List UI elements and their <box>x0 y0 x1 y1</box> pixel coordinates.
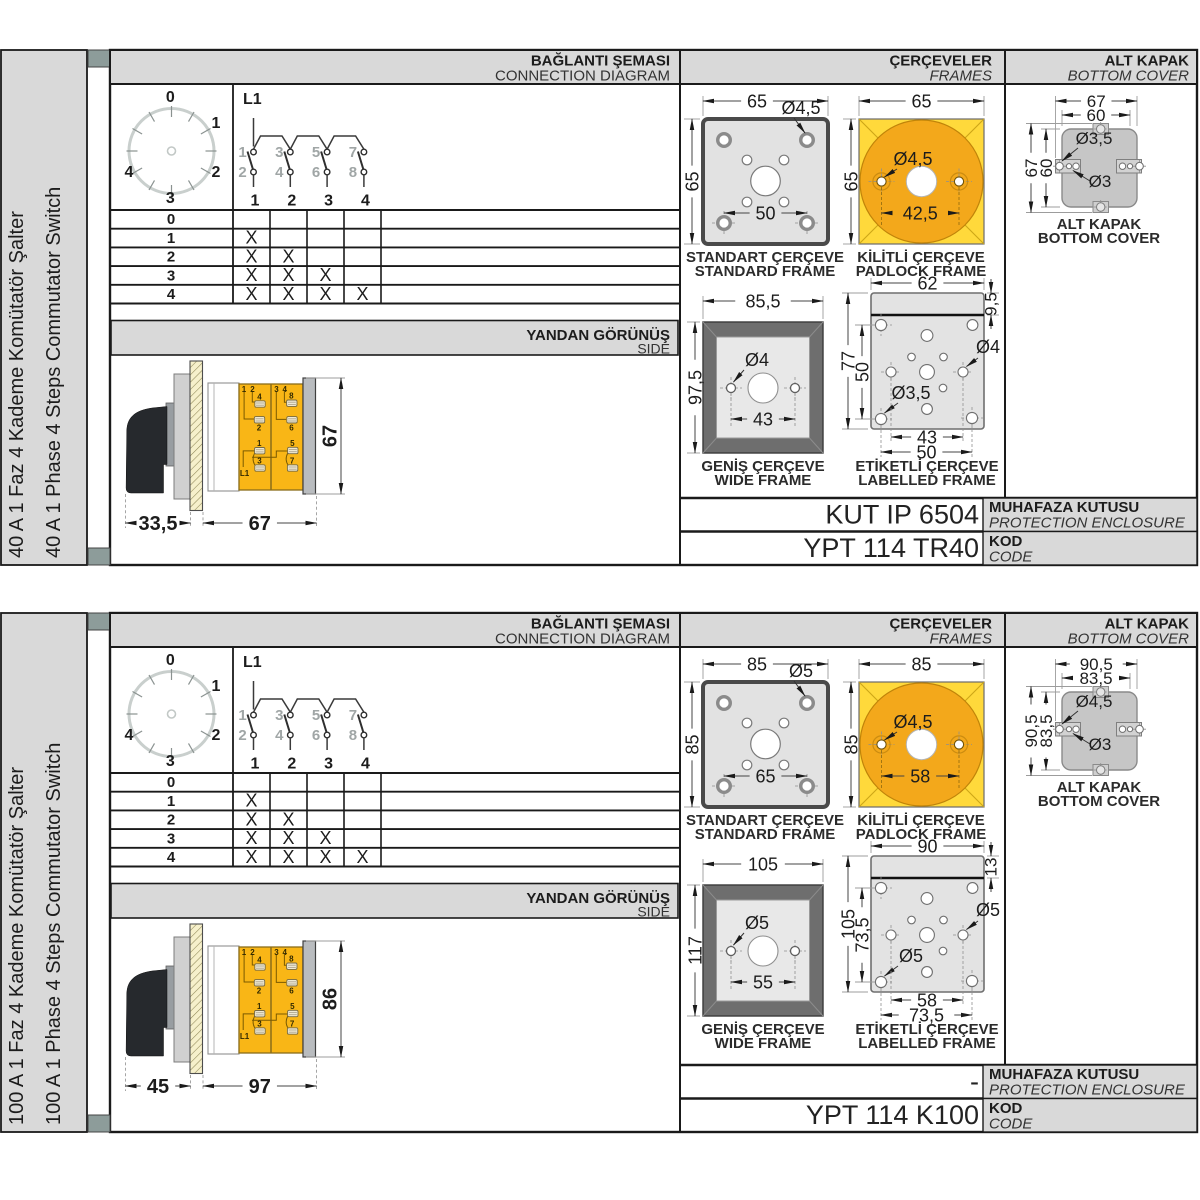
svg-text:L1: L1 <box>240 469 250 478</box>
svg-text:62: 62 <box>917 273 937 293</box>
svg-text:1: 1 <box>242 948 247 957</box>
svg-text:Ø3: Ø3 <box>1089 735 1112 754</box>
svg-text:2: 2 <box>257 986 262 995</box>
svg-text:4: 4 <box>257 956 262 965</box>
svg-text:8: 8 <box>349 164 357 181</box>
svg-text:SIDE: SIDE <box>637 904 670 920</box>
svg-text:67: 67 <box>320 425 342 447</box>
svg-text:1: 1 <box>212 678 221 695</box>
svg-text:Ø5: Ø5 <box>976 900 1000 920</box>
svg-text:X: X <box>245 847 257 867</box>
svg-text:KOD: KOD <box>989 1100 1023 1117</box>
svg-text:4: 4 <box>282 385 287 394</box>
svg-text:Ø4,5: Ø4,5 <box>1076 692 1113 711</box>
svg-text:45: 45 <box>147 1076 169 1098</box>
svg-text:1: 1 <box>238 144 246 161</box>
svg-text:X: X <box>282 246 294 266</box>
svg-text:CONNECTION DIAGRAM: CONNECTION DIAGRAM <box>495 631 670 648</box>
svg-text:X: X <box>282 809 294 829</box>
svg-text:BOTTOM COVER: BOTTOM COVER <box>1038 230 1160 247</box>
svg-text:LABELLED FRAME: LABELLED FRAME <box>858 472 996 489</box>
svg-text:1: 1 <box>257 1002 262 1011</box>
svg-text:5: 5 <box>312 707 320 724</box>
svg-text:85: 85 <box>682 734 702 754</box>
svg-text:65: 65 <box>841 171 861 191</box>
svg-text:X: X <box>356 847 368 867</box>
svg-text:Ø5: Ø5 <box>899 946 923 966</box>
svg-text:7: 7 <box>290 1020 295 1029</box>
svg-text:Ø4,5: Ø4,5 <box>781 98 820 118</box>
svg-text:Ø5: Ø5 <box>789 661 813 681</box>
svg-text:1: 1 <box>167 793 175 810</box>
svg-text:BOTTOM COVER: BOTTOM COVER <box>1068 68 1190 85</box>
svg-text:3: 3 <box>166 190 175 207</box>
svg-text:83,5: 83,5 <box>1079 669 1112 688</box>
svg-text:1: 1 <box>251 756 260 773</box>
svg-text:LABELLED FRAME: LABELLED FRAME <box>858 1035 996 1052</box>
svg-text:MUHAFAZA KUTUSU: MUHAFAZA KUTUSU <box>989 499 1139 516</box>
svg-text:65: 65 <box>755 766 775 786</box>
svg-text:X: X <box>245 228 257 248</box>
svg-text:42,5: 42,5 <box>903 203 938 223</box>
svg-text:0: 0 <box>166 89 175 106</box>
svg-text:X: X <box>319 847 331 867</box>
svg-text:3: 3 <box>275 707 283 724</box>
svg-text:X: X <box>319 828 331 848</box>
svg-text:7: 7 <box>349 144 357 161</box>
svg-text:X: X <box>245 246 257 266</box>
svg-text:Ø5: Ø5 <box>745 913 769 933</box>
svg-text:X: X <box>245 284 257 304</box>
svg-text:2: 2 <box>212 164 221 181</box>
svg-text:9,5: 9,5 <box>982 292 1001 316</box>
svg-text:2: 2 <box>257 423 262 432</box>
svg-text:Ø3: Ø3 <box>1089 172 1112 191</box>
svg-text:3: 3 <box>324 756 333 773</box>
svg-text:2: 2 <box>287 193 296 210</box>
svg-text:83,5: 83,5 <box>1037 714 1056 747</box>
svg-text:PROTECTION ENCLOSURE: PROTECTION ENCLOSURE <box>989 515 1186 532</box>
svg-text:6: 6 <box>289 986 294 995</box>
svg-text:117: 117 <box>685 936 705 965</box>
svg-text:YPT 114 TR40: YPT 114 TR40 <box>803 533 979 563</box>
svg-text:60: 60 <box>1037 159 1056 178</box>
svg-text:5: 5 <box>312 144 320 161</box>
svg-text:3: 3 <box>166 753 175 770</box>
svg-text:7: 7 <box>290 457 295 466</box>
svg-text:4: 4 <box>282 948 287 957</box>
svg-text:CODE: CODE <box>989 549 1033 566</box>
svg-text:Ø4: Ø4 <box>976 337 1000 357</box>
svg-text:CODE: CODE <box>989 1116 1033 1133</box>
svg-text:97: 97 <box>249 1076 271 1098</box>
svg-text:STANDARD FRAME: STANDARD FRAME <box>695 826 836 843</box>
svg-text:1: 1 <box>212 115 221 132</box>
svg-text:8: 8 <box>349 727 357 744</box>
svg-text:5: 5 <box>290 1002 295 1011</box>
svg-text:6: 6 <box>312 727 320 744</box>
svg-text:L1: L1 <box>240 1032 250 1041</box>
svg-text:X: X <box>245 265 257 285</box>
svg-text:Ø3,5: Ø3,5 <box>1076 129 1113 148</box>
svg-text:Ø4,5: Ø4,5 <box>893 149 932 169</box>
svg-text:33,5: 33,5 <box>139 513 178 535</box>
svg-text:3: 3 <box>167 830 175 847</box>
svg-text:WIDE FRAME: WIDE FRAME <box>715 1035 812 1052</box>
svg-text:X: X <box>282 265 294 285</box>
svg-text:Ø4,5: Ø4,5 <box>893 712 932 732</box>
svg-text:4: 4 <box>167 286 176 303</box>
svg-text:105: 105 <box>748 854 778 874</box>
svg-text:6: 6 <box>312 164 320 181</box>
svg-text:X: X <box>245 791 257 811</box>
svg-text:100 A 1 Faz 4 Kademe Komütatör: 100 A 1 Faz 4 Kademe Komütatör Şalter <box>6 767 28 1125</box>
svg-text:X: X <box>282 284 294 304</box>
svg-text:4: 4 <box>125 727 134 744</box>
svg-text:PROTECTION ENCLOSURE: PROTECTION ENCLOSURE <box>989 1082 1186 1099</box>
svg-text:X: X <box>245 828 257 848</box>
svg-text:X: X <box>319 265 331 285</box>
svg-text:73,5: 73,5 <box>852 917 872 952</box>
svg-text:58: 58 <box>910 766 930 786</box>
svg-text:0: 0 <box>167 774 175 791</box>
svg-text:YPT 114 K100: YPT 114 K100 <box>806 1100 979 1130</box>
svg-text:2: 2 <box>250 385 255 394</box>
svg-text:2: 2 <box>250 948 255 957</box>
svg-text:CONNECTION DIAGRAM: CONNECTION DIAGRAM <box>495 68 670 85</box>
svg-text:55: 55 <box>753 972 773 992</box>
svg-text:1: 1 <box>242 385 247 394</box>
svg-text:1: 1 <box>251 193 260 210</box>
svg-text:1: 1 <box>167 230 175 247</box>
svg-text:40 A 1 Faz 4 Kademe Komütatör: 40 A 1 Faz 4 Kademe Komütatör Şalter <box>6 211 28 558</box>
svg-text:85: 85 <box>747 654 767 674</box>
svg-text:8: 8 <box>289 955 294 964</box>
svg-text:0: 0 <box>167 211 175 228</box>
svg-text:3: 3 <box>167 267 175 284</box>
svg-text:40 A 1 Phase 4 Steps Commutato: 40 A 1 Phase 4 Steps Commutator Switch <box>43 187 65 558</box>
svg-text:85: 85 <box>911 654 931 674</box>
svg-text:13: 13 <box>982 858 1001 877</box>
svg-text:3: 3 <box>257 1020 262 1029</box>
svg-text:FRAMES: FRAMES <box>929 68 992 85</box>
svg-text:43: 43 <box>753 409 773 429</box>
svg-text:3: 3 <box>274 948 279 957</box>
svg-text:50: 50 <box>755 203 775 223</box>
svg-text:X: X <box>319 284 331 304</box>
svg-text:-: - <box>970 1067 979 1097</box>
svg-text:85,5: 85,5 <box>745 291 780 311</box>
svg-text:4: 4 <box>275 164 284 181</box>
svg-text:4: 4 <box>257 393 262 402</box>
svg-text:2: 2 <box>238 164 246 181</box>
svg-text:2: 2 <box>212 727 221 744</box>
svg-text:2: 2 <box>167 812 175 829</box>
svg-text:KOD: KOD <box>989 533 1023 550</box>
svg-text:100 A 1 Phase 4 Steps Commutat: 100 A 1 Phase 4 Steps Commutator Switch <box>43 743 65 1125</box>
svg-text:67: 67 <box>249 513 271 535</box>
svg-text:50: 50 <box>852 362 872 382</box>
svg-text:KUT IP 6504: KUT IP 6504 <box>825 500 979 530</box>
svg-text:L1: L1 <box>243 654 262 671</box>
svg-text:5: 5 <box>290 439 295 448</box>
svg-text:X: X <box>356 284 368 304</box>
svg-text:90: 90 <box>917 836 937 856</box>
svg-text:BOTTOM COVER: BOTTOM COVER <box>1068 631 1190 648</box>
svg-text:2: 2 <box>167 249 175 266</box>
svg-text:WIDE FRAME: WIDE FRAME <box>715 472 812 489</box>
svg-text:Ø3,5: Ø3,5 <box>891 383 930 403</box>
svg-text:97,5: 97,5 <box>685 370 705 405</box>
svg-text:65: 65 <box>911 91 931 111</box>
svg-text:1: 1 <box>257 439 262 448</box>
svg-text:6: 6 <box>289 423 294 432</box>
svg-text:7: 7 <box>349 707 357 724</box>
svg-text:4: 4 <box>361 756 370 773</box>
svg-text:4: 4 <box>275 727 284 744</box>
svg-text:MUHAFAZA KUTUSU: MUHAFAZA KUTUSU <box>989 1066 1139 1083</box>
svg-text:0: 0 <box>166 652 175 669</box>
svg-text:FRAMES: FRAMES <box>929 631 992 648</box>
svg-text:L1: L1 <box>243 91 262 108</box>
svg-text:X: X <box>282 828 294 848</box>
svg-text:STANDARD FRAME: STANDARD FRAME <box>695 263 836 280</box>
svg-text:85: 85 <box>841 734 861 754</box>
svg-text:3: 3 <box>257 457 262 466</box>
svg-text:4: 4 <box>361 193 370 210</box>
svg-text:X: X <box>245 809 257 829</box>
svg-text:8: 8 <box>289 392 294 401</box>
svg-text:3: 3 <box>324 193 333 210</box>
svg-text:1: 1 <box>238 707 246 724</box>
svg-text:65: 65 <box>682 171 702 191</box>
svg-text:X: X <box>282 847 294 867</box>
svg-text:4: 4 <box>125 164 134 181</box>
svg-text:3: 3 <box>275 144 283 161</box>
svg-text:60: 60 <box>1087 106 1106 125</box>
svg-text:BOTTOM COVER: BOTTOM COVER <box>1038 793 1160 810</box>
svg-text:3: 3 <box>274 385 279 394</box>
svg-text:65: 65 <box>747 91 767 111</box>
svg-text:SIDE: SIDE <box>637 341 670 357</box>
svg-text:86: 86 <box>320 988 342 1010</box>
svg-text:2: 2 <box>287 756 296 773</box>
svg-text:4: 4 <box>167 849 176 866</box>
svg-text:2: 2 <box>238 727 246 744</box>
svg-text:Ø4: Ø4 <box>745 350 769 370</box>
